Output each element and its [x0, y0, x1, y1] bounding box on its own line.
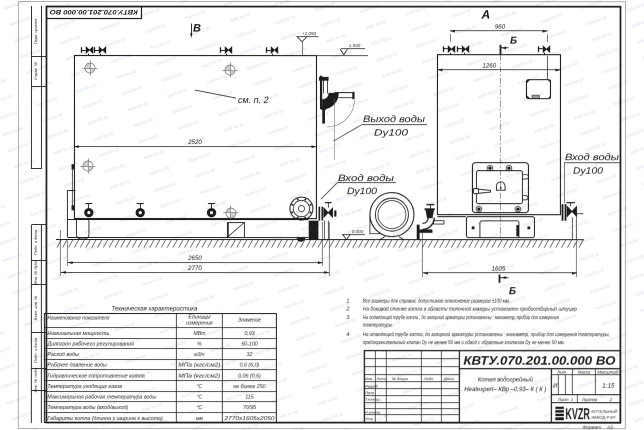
svg-text:1: 1: [571, 397, 573, 402]
svg-text:1605: 1605: [492, 266, 506, 273]
svg-text:0.000: 0.000: [352, 229, 364, 234]
svg-text:960: 960: [495, 24, 506, 31]
svg-text:И: И: [553, 383, 558, 390]
svg-text:На отводящей трубе котла, до з: На отводящей трубе котла, до запорной ар…: [363, 331, 610, 338]
svg-text:№ докум.: № докум.: [392, 377, 409, 381]
svg-text:Выход воды: Выход воды: [363, 114, 425, 124]
svg-text:Рабочее давление воды: Рабочее давление воды: [47, 363, 106, 369]
svg-text:В: В: [193, 23, 201, 35]
svg-text:Вход воды: Вход воды: [338, 173, 394, 183]
svg-text:КВТУ.070.201.00.000 ВО: КВТУ.070.201.00.000 ВО: [49, 8, 138, 15]
svg-text:Dy100: Dy100: [374, 128, 409, 138]
svg-text:4: 4: [346, 332, 349, 338]
svg-text:Пров.: Пров.: [365, 391, 375, 395]
svg-text:предохранительный клапан Dу н: предохранительный клапан Dу не менее 50 …: [363, 339, 565, 346]
svg-text:Н.контр.: Н.контр.: [365, 411, 381, 415]
svg-text:Инв. № дубл.: Инв. № дубл.: [33, 260, 38, 285]
svg-text:+2.050: +2.050: [302, 31, 317, 36]
svg-text:0,6 (6,0): 0,6 (6,0): [240, 363, 260, 369]
svg-text:Дата: Дата: [443, 377, 454, 381]
svg-text:МВт: МВт: [194, 331, 206, 337]
svg-text:Котел водогрейный: Котел водогрейный: [478, 376, 533, 384]
svg-text:Подп. и дата: Подп. и дата: [33, 337, 38, 363]
svg-text:мм: мм: [196, 416, 203, 422]
svg-text:Значение: Значение: [238, 318, 261, 324]
svg-text:не более 250: не более 250: [233, 384, 265, 390]
svg-text:КОТЕЛЬНЫЙ: КОТЕЛЬНЫЙ: [591, 409, 617, 414]
svg-text:см. п. 2: см. п. 2: [238, 95, 269, 105]
svg-text:Вход воды: Вход воды: [565, 152, 619, 162]
svg-text:измерения: измерения: [186, 321, 213, 327]
svg-text:КВТУ.070.201.00.000 ВО: КВТУ.070.201.00.000 ВО: [463, 356, 615, 368]
svg-text:0,06 (0,6): 0,06 (0,6): [238, 373, 261, 379]
svg-text:Dy100: Dy100: [347, 186, 378, 196]
svg-text:1:15: 1:15: [602, 383, 615, 390]
svg-text:Масштаб: Масштаб: [597, 370, 619, 375]
svg-text:%: %: [197, 342, 202, 348]
svg-text:Лист: Лист: [375, 377, 386, 381]
svg-text:Справ. №: Справ. №: [33, 61, 38, 80]
svg-text:KVZR: KVZR: [565, 406, 590, 423]
svg-text:°С: °С: [197, 395, 203, 401]
svg-text:МПа (кгс/см2): МПа (кгс/см2): [178, 363, 220, 369]
svg-text:Dy100: Dy100: [573, 166, 604, 176]
svg-text:1: 1: [346, 298, 349, 304]
svg-text:Диапазон рабочего регулировани: Диапазон рабочего регулирования: [46, 342, 134, 348]
svg-text:°С: °С: [197, 384, 203, 390]
svg-text:Инв. № подл.: Инв. № подл.: [33, 368, 38, 393]
svg-text:Подп.: Подп.: [424, 377, 434, 381]
svg-text:Листов: Листов: [581, 397, 598, 402]
svg-text:Все размеры для справок, допус: Все размеры для справок, допустимое откл…: [363, 298, 510, 304]
svg-text:Номинальная мощность: Номинальная мощность: [47, 331, 109, 337]
svg-text:Температура уходящих газов: Температура уходящих газов: [47, 384, 122, 390]
svg-text:Подп. и дата: Подп. и дата: [33, 229, 38, 255]
svg-text:Лист: Лист: [557, 397, 569, 402]
svg-text:Гидравлическое сопротивление к: Гидравлическое сопротивление котла: [47, 373, 144, 379]
svg-text:Перв. примен.: Перв. примен.: [33, 18, 38, 45]
svg-text:2770х1605х2050: 2770х1605х2050: [223, 416, 274, 422]
svg-text:50-100: 50-100: [241, 342, 258, 348]
svg-text:Расход воды: Расход воды: [47, 352, 78, 358]
svg-text:Б: Б: [510, 36, 517, 47]
svg-text:На подводящей трубе котла , д: На подводящей трубе котла , до запорной …: [363, 314, 559, 321]
svg-text:0,93: 0,93: [244, 331, 254, 337]
svg-text:м3/ч: м3/ч: [194, 352, 205, 358]
svg-text:Масса: Масса: [578, 370, 591, 375]
svg-text:70/95: 70/95: [243, 405, 256, 411]
svg-text:2770: 2770: [187, 265, 202, 272]
svg-text:Техническая характеристика: Техническая характеристика: [111, 305, 197, 312]
svg-text:Наименование показателя: Наименование показателя: [47, 316, 109, 322]
svg-text:Максимальная рабочая температу: Максимальная рабочая температура воды: [47, 395, 156, 401]
svg-text:Изм.: Изм.: [365, 377, 373, 381]
svg-text:Взам. инв. №: Взам. инв. №: [33, 295, 38, 320]
svg-text:МПа (кгс/см2): МПа (кгс/см2): [178, 373, 220, 379]
svg-text:Температура воды (вход/выход): Температура воды (вход/выход): [47, 405, 128, 411]
svg-text:115: 115: [245, 395, 254, 401]
svg-text:2520: 2520: [187, 139, 202, 146]
svg-text:ЗАВОД РЭП: ЗАВОД РЭП: [591, 415, 615, 420]
svg-text:Утв.: Утв.: [365, 417, 374, 421]
svg-text:3: 3: [346, 315, 349, 321]
svg-text:2650: 2650: [187, 255, 202, 262]
svg-text:1.930: 1.930: [349, 43, 361, 48]
svg-text:2: 2: [345, 307, 349, 313]
svg-text:А: А: [480, 8, 490, 22]
svg-text:На боковой стенке котла в обла: На боковой стенке котла в области топочн…: [363, 306, 577, 313]
svg-text:температуры.: температуры.: [363, 323, 393, 329]
svg-text:Единицы: Единицы: [188, 314, 210, 320]
svg-text:Лит.: Лит.: [556, 370, 567, 375]
svg-text:Heatexpert– КВр –0,93– К ( К ): Heatexpert– КВр –0,93– К ( К ): [464, 386, 546, 393]
svg-text:Габариты котла (длинна х ширин: Габариты котла (длинна х ширина х высота…: [47, 416, 163, 422]
svg-text:Разраб.: Разраб.: [365, 385, 379, 389]
svg-text:Т.контр.: Т.контр.: [365, 398, 380, 402]
svg-text:Формат: Формат: [583, 425, 601, 430]
svg-text:32: 32: [247, 352, 253, 358]
svg-text:1260: 1260: [482, 62, 496, 69]
svg-text:Б: Б: [509, 286, 516, 297]
svg-text:°С: °С: [197, 405, 203, 411]
svg-text:А3: А3: [606, 425, 613, 430]
